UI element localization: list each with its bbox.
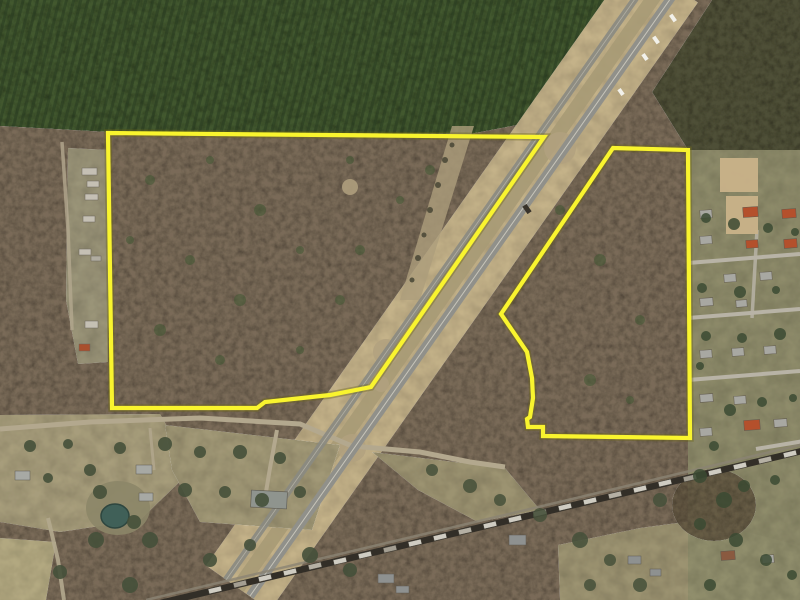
satellite-property-map: [0, 0, 800, 600]
field-bottom-left: [0, 538, 56, 600]
pond: [101, 504, 129, 528]
left-homestead-clearing: [66, 148, 108, 364]
map-canvas: [0, 0, 800, 600]
